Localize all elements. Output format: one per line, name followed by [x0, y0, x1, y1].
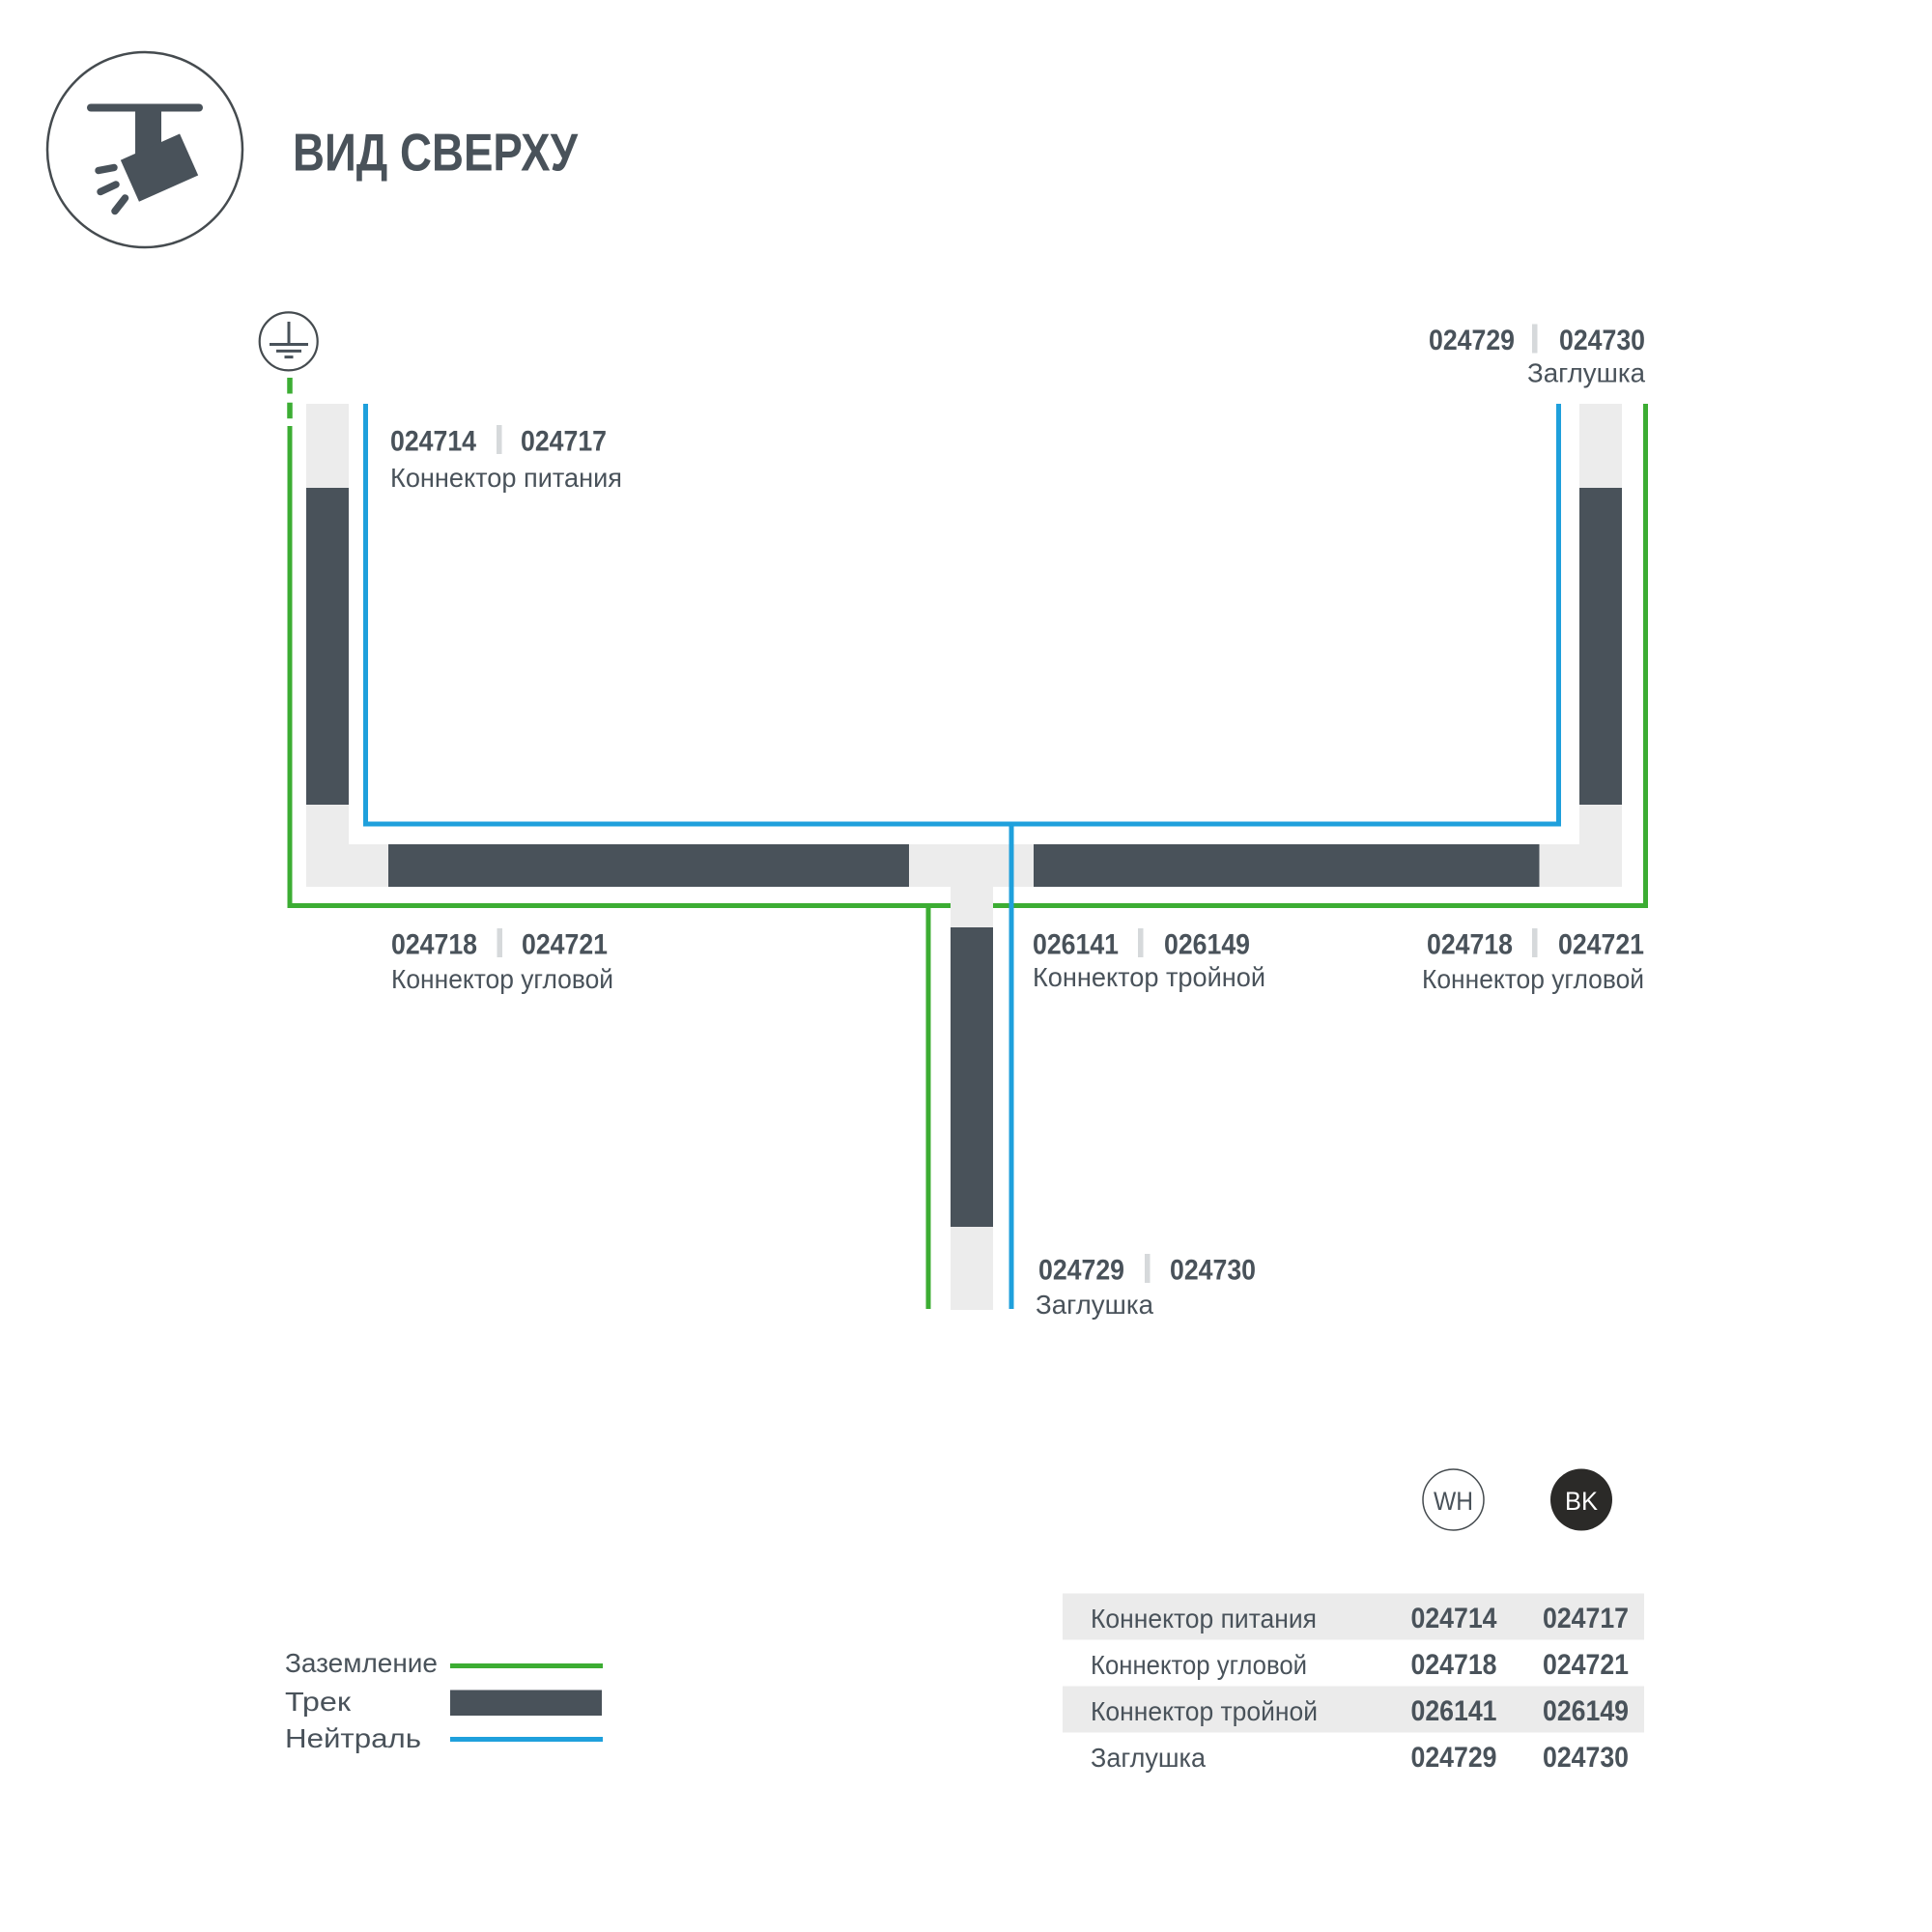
svg-text:Заглушка: Заглушка [1036, 1290, 1153, 1320]
svg-text:Трек: Трек [285, 1687, 352, 1717]
svg-text:024729: 024729 [1429, 325, 1515, 356]
svg-text:026141: 026141 [1411, 1695, 1497, 1727]
svg-text:Коннектор угловой: Коннектор угловой [391, 964, 613, 994]
svg-text:Заглушка: Заглушка [1091, 1743, 1206, 1773]
svg-text:Коннектор угловой: Коннектор угловой [1422, 964, 1644, 994]
svg-text:024721: 024721 [522, 929, 608, 961]
svg-text:024721: 024721 [1558, 929, 1644, 961]
svg-text:024730: 024730 [1543, 1742, 1629, 1774]
svg-text:024717: 024717 [521, 426, 607, 458]
svg-text:ВИД СВЕРХУ: ВИД СВЕРХУ [293, 123, 579, 183]
svg-text:026149: 026149 [1543, 1695, 1629, 1727]
svg-text:Коннектор тройной: Коннектор тройной [1033, 962, 1265, 992]
svg-text:024717: 024717 [1543, 1603, 1629, 1634]
svg-text:Коннектор питания: Коннектор питания [390, 463, 622, 493]
svg-text:024718: 024718 [1427, 929, 1513, 961]
svg-text:024729: 024729 [1411, 1742, 1497, 1774]
svg-text:026149: 026149 [1164, 929, 1250, 961]
svg-text:024721: 024721 [1543, 1649, 1629, 1681]
svg-text:WH: WH [1434, 1487, 1473, 1516]
svg-text:Заземление: Заземление [285, 1648, 438, 1678]
svg-text:Коннектор тройной: Коннектор тройной [1091, 1696, 1318, 1726]
svg-text:024729: 024729 [1038, 1255, 1124, 1287]
svg-text:Коннектор питания: Коннектор питания [1091, 1604, 1317, 1634]
svg-text:024718: 024718 [391, 929, 477, 961]
svg-text:Коннектор угловой: Коннектор угловой [1091, 1650, 1307, 1680]
svg-text:024730: 024730 [1559, 325, 1645, 356]
svg-text:024730: 024730 [1170, 1255, 1256, 1287]
svg-text:024714: 024714 [1411, 1603, 1497, 1634]
svg-text:024714: 024714 [390, 426, 476, 458]
svg-text:026141: 026141 [1033, 929, 1119, 961]
svg-text:Заглушка: Заглушка [1527, 358, 1645, 388]
svg-text:024718: 024718 [1411, 1649, 1497, 1681]
svg-text:Нейтраль: Нейтраль [285, 1723, 421, 1753]
svg-text:BK: BK [1565, 1487, 1598, 1516]
